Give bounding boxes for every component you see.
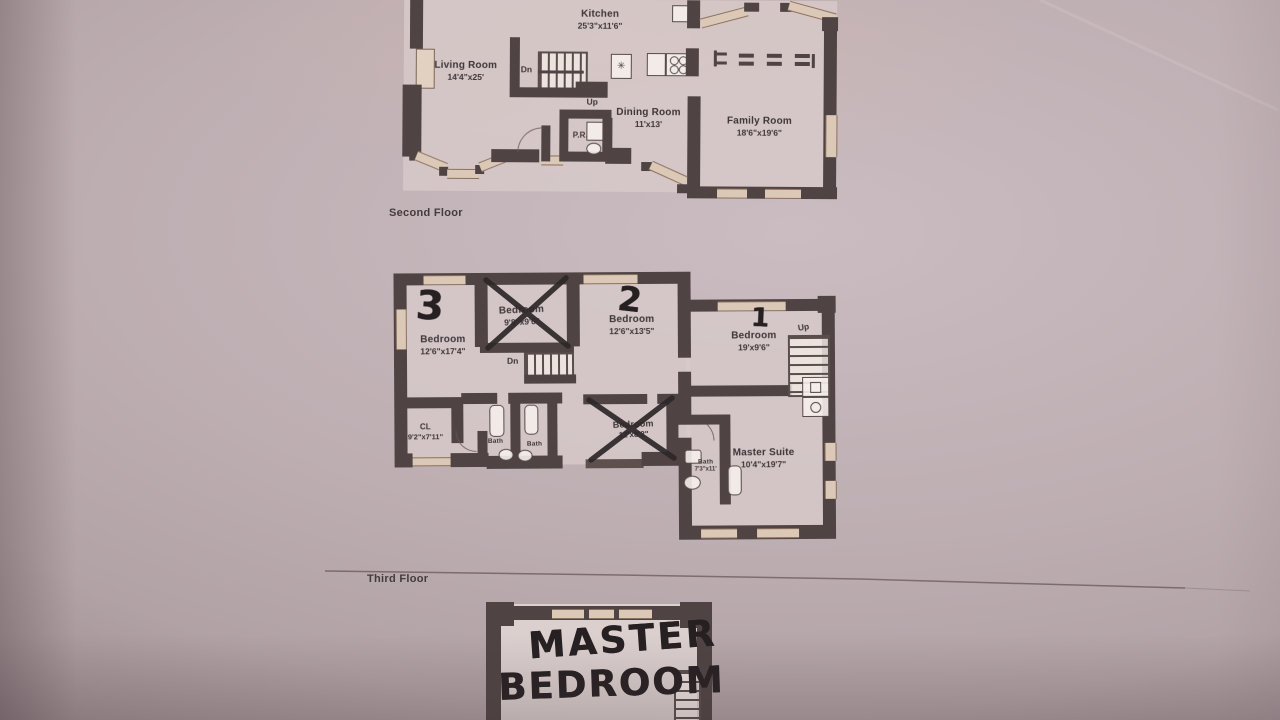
fourth-floor-plan: MASTER BEDROOM [0, 0, 1280, 720]
wall-segment [584, 606, 589, 620]
floor-plan-photo: Dn Up ✳ [0, 0, 1280, 720]
handwritten-bedroom: BEDROOM [497, 658, 725, 709]
